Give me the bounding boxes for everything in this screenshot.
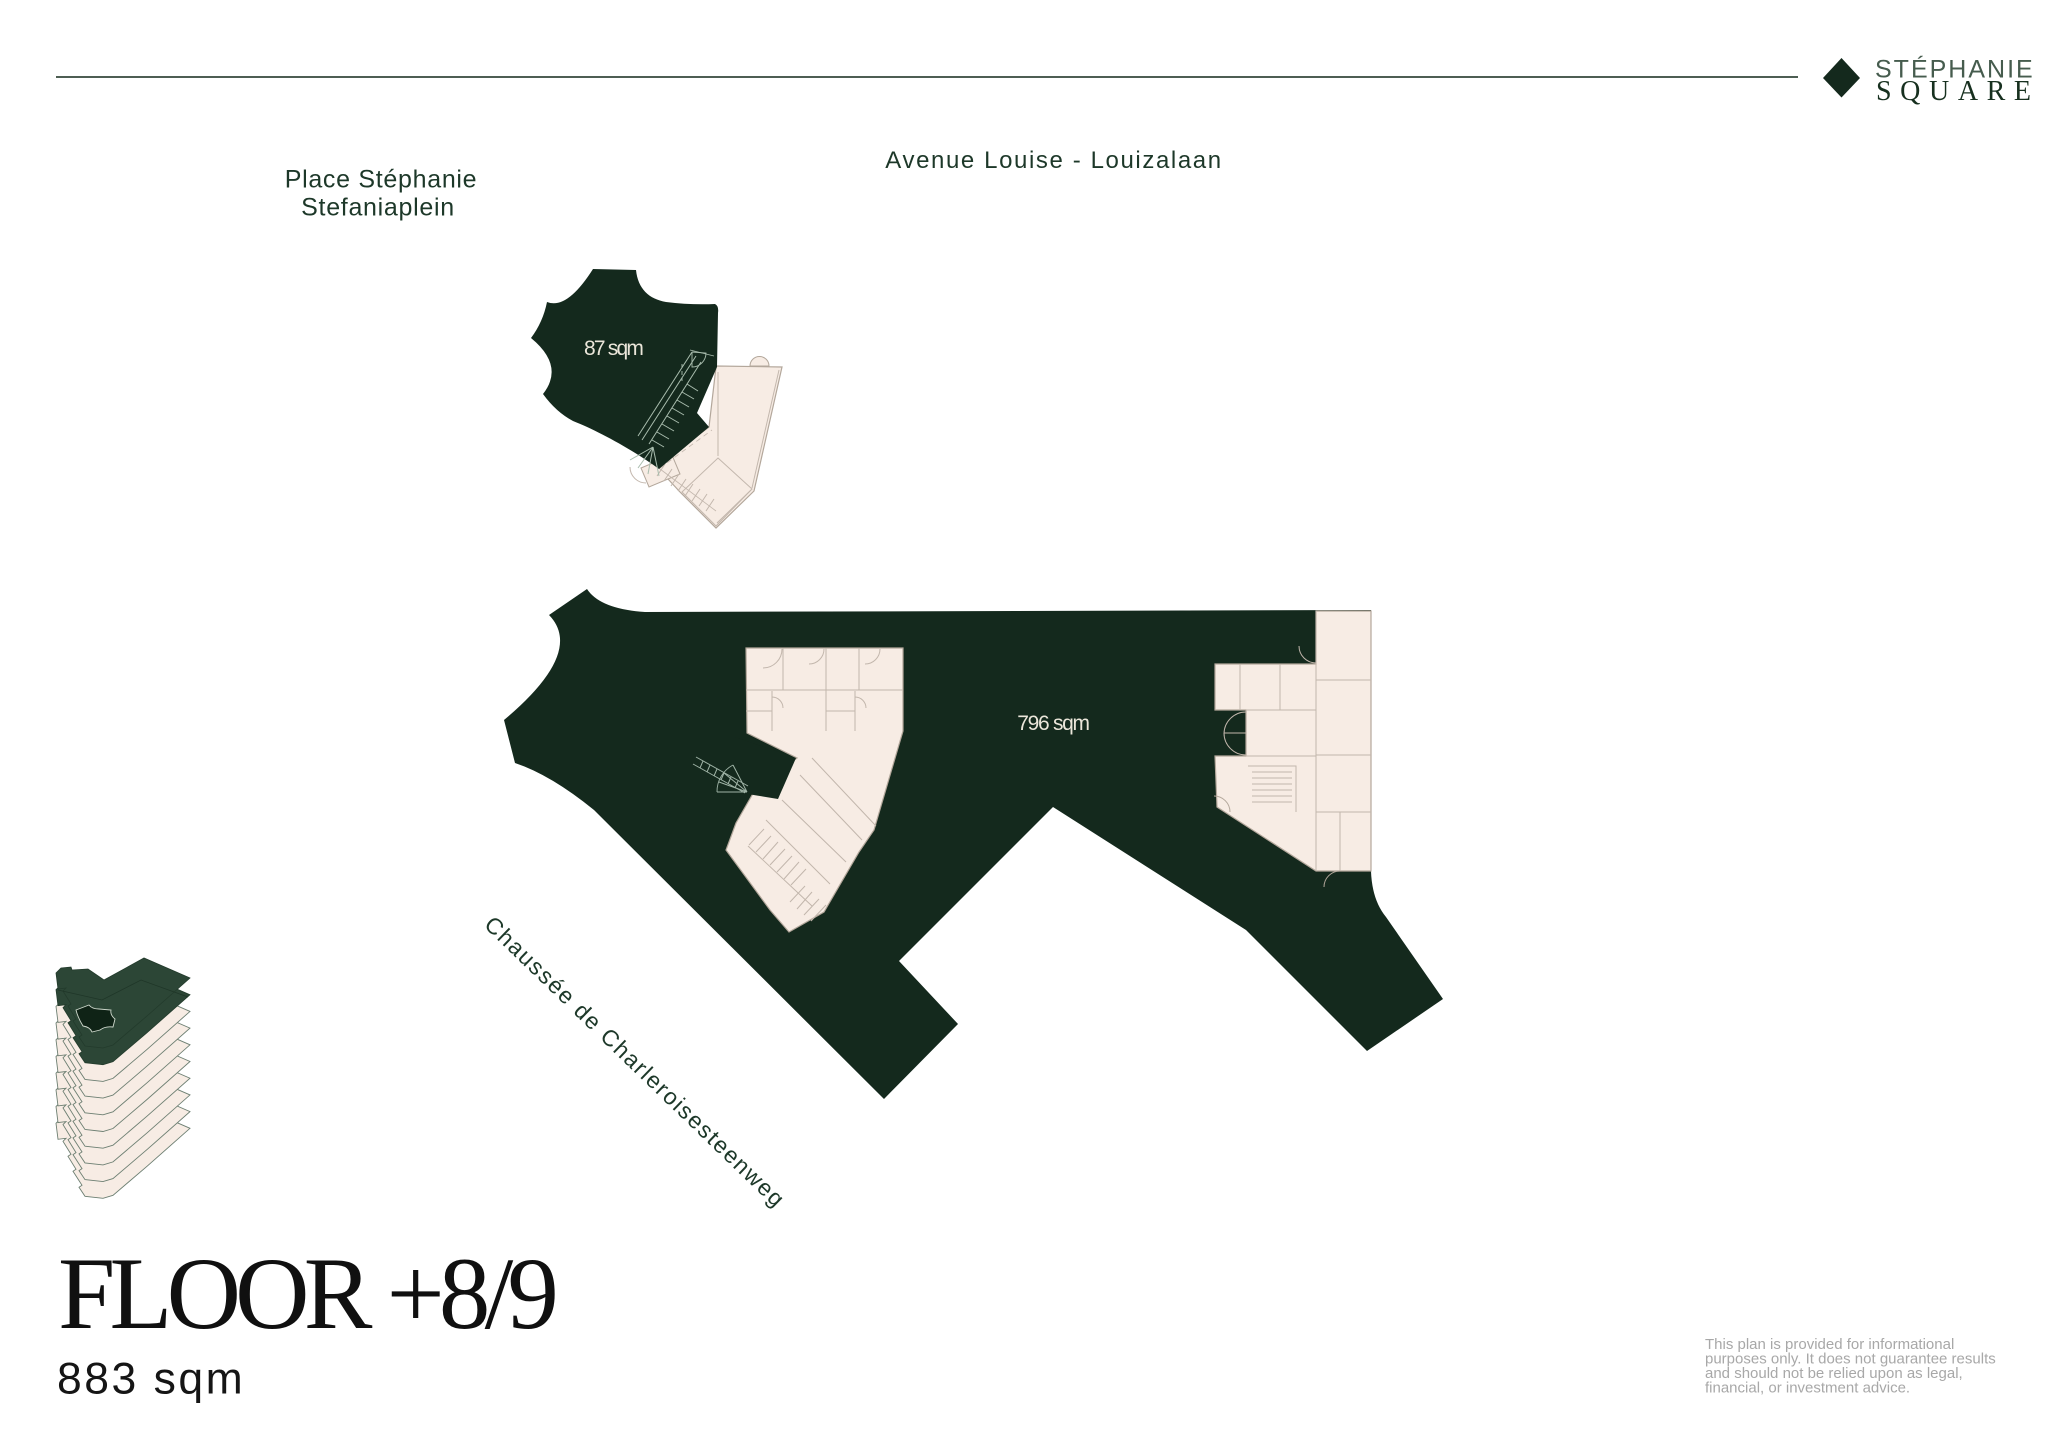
svg-text:financial, or investment advic: financial, or investment advice. (1705, 1380, 1910, 1397)
svg-text:87 sqm: 87 sqm (584, 337, 643, 360)
svg-text:Stefaniaplein: Stefaniaplein (301, 194, 455, 222)
svg-text:SQUARE: SQUARE (1876, 76, 2040, 107)
svg-text:883 sqm: 883 sqm (57, 1355, 245, 1404)
svg-text:Avenue Louise - Louizalaan: Avenue Louise - Louizalaan (885, 147, 1222, 174)
svg-text:FLOOR +8/9: FLOOR +8/9 (58, 1237, 555, 1351)
svg-text:796 sqm: 796 sqm (1017, 712, 1089, 735)
svg-text:Place Stéphanie: Place Stéphanie (285, 166, 478, 194)
